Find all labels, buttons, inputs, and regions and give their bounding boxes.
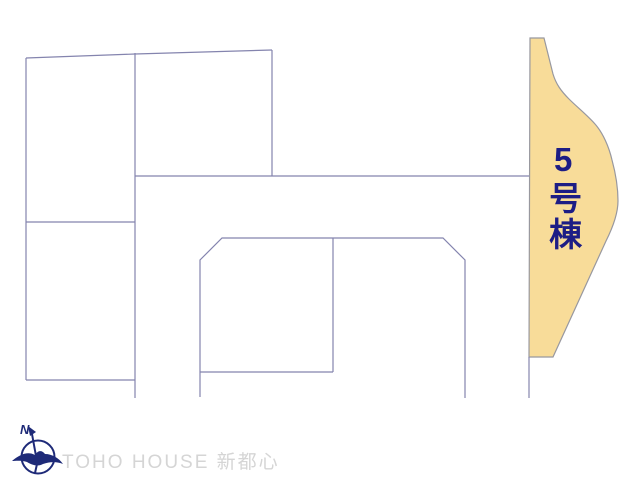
- compass-north-label: N: [20, 422, 30, 437]
- compass-icon: N: [11, 419, 65, 480]
- lot-boundary-lines: [26, 50, 529, 398]
- lot-boundary-top-boundary: [26, 50, 272, 58]
- compass-needle: [32, 434, 36, 456]
- watermark-logo: TOHO HOUSE 新都心: [62, 447, 280, 474]
- site-plan-svg: [0, 0, 640, 480]
- site-plan: 5号棟 N TOHO HOUSE 新都心: [0, 0, 640, 480]
- lot-5-label: 5号棟: [545, 141, 580, 253]
- compass-bird-shape: [12, 451, 63, 465]
- compass-tail: [35, 464, 37, 473]
